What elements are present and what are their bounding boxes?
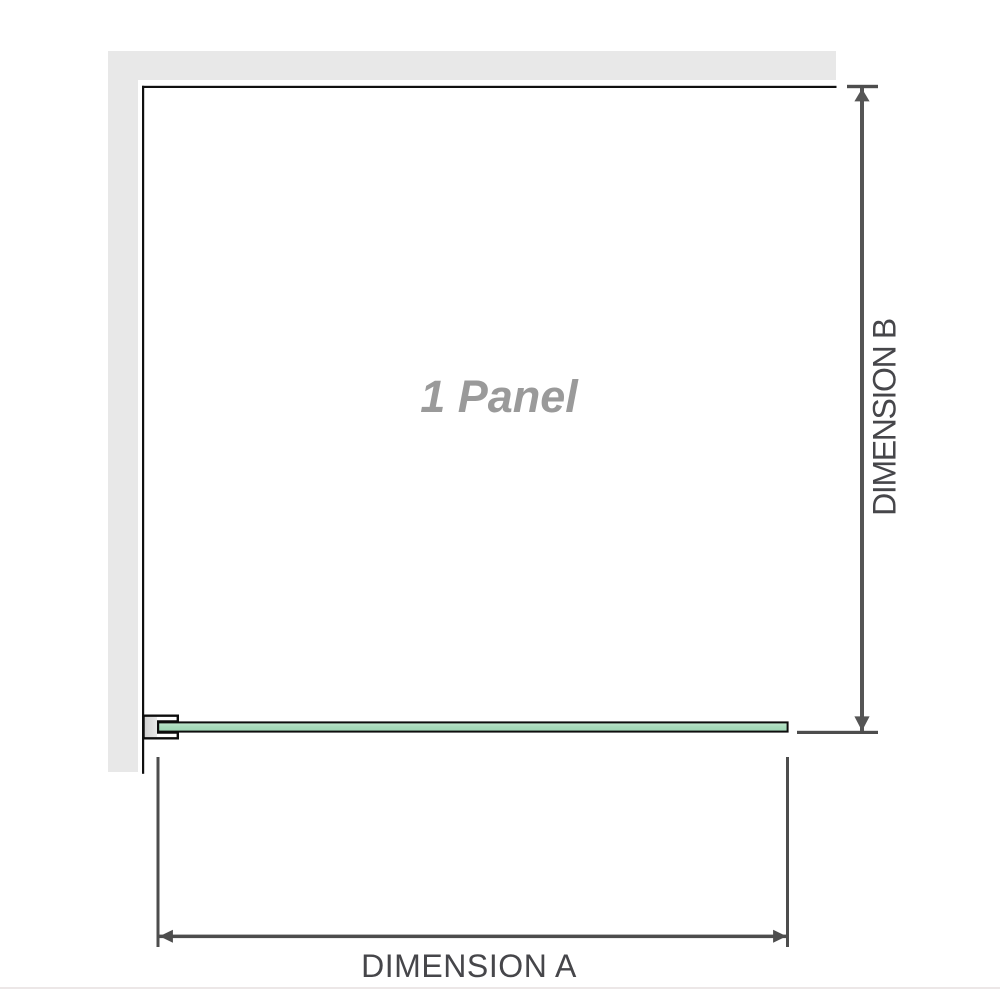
svg-text:DIMENSION B: DIMENSION B [867,319,903,516]
svg-text:1 Panel: 1 Panel [420,371,579,422]
svg-text:DIMENSION A: DIMENSION A [361,948,577,984]
